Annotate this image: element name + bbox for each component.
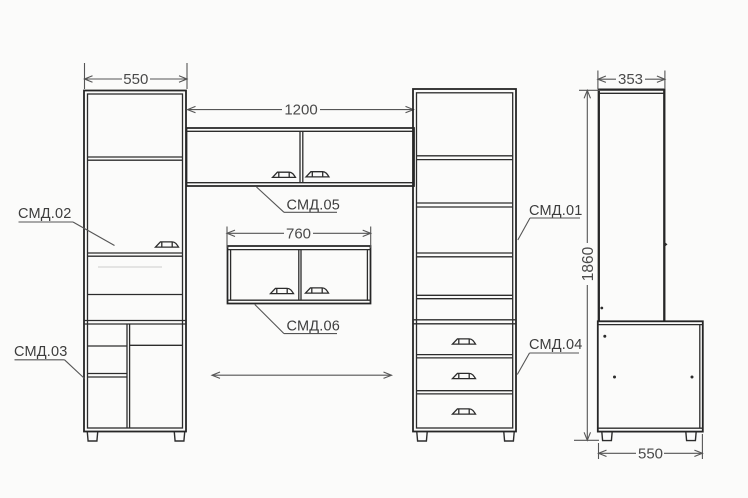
svg-text:550: 550 [123,71,148,88]
svg-text:СМД.02: СМД.02 [18,206,72,222]
svg-text:СМД.01: СМД.01 [529,203,583,219]
svg-text:СМД.05: СМД.05 [287,198,341,214]
svg-text:СМД.06: СМД.06 [287,319,341,335]
svg-text:353: 353 [618,71,643,88]
svg-text:СМД.04: СМД.04 [529,337,583,353]
svg-text:760: 760 [286,225,311,242]
svg-text:1200: 1200 [284,102,317,119]
svg-text:СМД.03: СМД.03 [14,344,68,360]
svg-text:550: 550 [638,445,663,462]
svg-text:1860: 1860 [580,246,597,281]
